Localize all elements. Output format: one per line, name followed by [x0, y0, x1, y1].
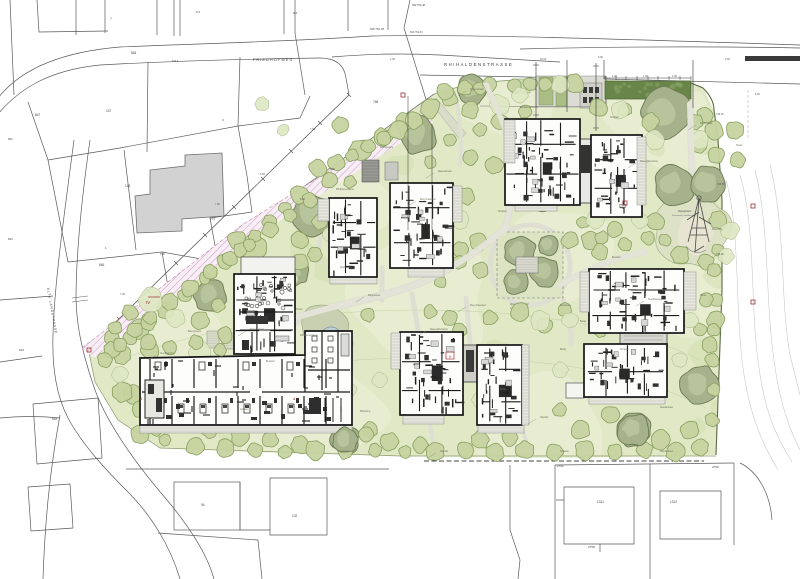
svg-text:1.00: 1.00	[612, 75, 617, 78]
svg-text:816.6: 816.6	[172, 60, 179, 63]
svg-text:IV: IV	[146, 300, 150, 305]
svg-text:2759: 2759	[712, 465, 719, 469]
svg-text:Pflanzung: Pflanzung	[712, 229, 723, 231]
svg-text:7: 7	[110, 17, 112, 21]
svg-text:Gehweg: Gehweg	[240, 409, 249, 411]
svg-text:Sitzplatz: Sitzplatz	[498, 210, 508, 213]
svg-text:Bestand: Bestand	[612, 256, 621, 259]
svg-text:Wiese: Wiese	[500, 389, 507, 391]
svg-text:Rasenansaat: Rasenansaat	[470, 88, 484, 91]
svg-text:FRIEDHOFWEG: FRIEDHOFWEG	[253, 58, 294, 62]
svg-text:902: 902	[8, 137, 13, 141]
svg-text:846: 846	[99, 263, 105, 267]
svg-text:5: 5	[449, 355, 451, 359]
svg-text:RHIHALDENSTRASSE: RHIHALDENSTRASSE	[444, 62, 513, 67]
svg-text:Vorplatz: Vorplatz	[440, 450, 449, 453]
svg-text:Terrasse: Terrasse	[620, 348, 630, 351]
svg-text:Bestand: Bestand	[266, 360, 275, 363]
svg-text:1.00: 1.00	[643, 75, 648, 78]
svg-text:Vorplatz: Vorplatz	[540, 416, 549, 419]
svg-text:846: 846	[131, 51, 137, 55]
svg-text:8.00: 8.00	[755, 93, 760, 96]
svg-text:143: 143	[125, 184, 131, 188]
svg-text:NW 752.03: NW 752.03	[410, 31, 423, 34]
svg-text:Baumgruppe: Baumgruppe	[380, 146, 394, 149]
svg-text:Neupflanzung: Neupflanzung	[160, 353, 175, 355]
svg-text:Gehweg: Gehweg	[340, 451, 349, 453]
svg-text:847: 847	[35, 113, 41, 117]
svg-text:Terrasse: Terrasse	[560, 450, 570, 453]
svg-text:Pflanzung: Pflanzung	[360, 411, 371, 413]
svg-text:745.50: 745.50	[717, 183, 725, 186]
svg-text:Rasenansaat: Rasenansaat	[250, 328, 264, 331]
svg-text:9.2: 9.2	[293, 11, 298, 15]
svg-text:640: 640	[19, 348, 24, 352]
svg-text:2758: 2758	[588, 545, 595, 549]
svg-text:745.00: 745.00	[716, 253, 724, 256]
svg-text:Hecke: Hecke	[736, 145, 743, 147]
svg-text:5.50: 5.50	[160, 253, 165, 256]
svg-text:Staudenbeet: Staudenbeet	[660, 450, 673, 453]
svg-text:Belag: Belag	[560, 349, 567, 351]
svg-text:768: 768	[373, 100, 379, 104]
svg-text:1311: 1311	[597, 500, 604, 504]
svg-text:5.50: 5.50	[260, 173, 265, 176]
svg-text:Staudenbeet: Staudenbeet	[660, 406, 673, 409]
svg-text:Wiese: Wiese	[700, 295, 707, 297]
svg-text:d: d	[293, 396, 295, 401]
svg-text:94: 94	[201, 503, 205, 507]
svg-text:Spielwiese: Spielwiese	[560, 305, 572, 307]
svg-text:1.00: 1.00	[672, 75, 677, 78]
svg-text:Baumgruppe: Baumgruppe	[188, 330, 202, 333]
svg-text:d: d	[140, 396, 142, 401]
svg-text:Weg chaussiert: Weg chaussiert	[470, 304, 486, 307]
svg-text:7.00: 7.00	[215, 203, 220, 206]
svg-text:NW 753.48: NW 753.48	[412, 3, 426, 7]
svg-text:Sitzplatz: Sitzplatz	[610, 116, 620, 119]
svg-text:1312: 1312	[670, 500, 677, 504]
svg-text:Belag: Belag	[580, 321, 587, 323]
svg-text:5.00: 5.00	[598, 56, 603, 59]
svg-text:Hecke: Hecke	[296, 309, 303, 311]
svg-text:7.00: 7.00	[420, 238, 425, 241]
svg-text:1.30: 1.30	[390, 58, 395, 61]
svg-text:Spielwiese: Spielwiese	[340, 267, 352, 269]
svg-text:132: 132	[292, 514, 298, 518]
svg-text:NW 752.03: NW 752.03	[370, 27, 384, 31]
svg-text:Neupflanzung: Neupflanzung	[648, 299, 663, 301]
svg-text:707: 707	[210, 217, 216, 221]
svg-text:3.00: 3.00	[300, 198, 305, 201]
svg-text:Magerwiese: Magerwiese	[368, 294, 381, 297]
svg-text:844: 844	[8, 237, 13, 241]
svg-text:Magerwiese: Magerwiese	[700, 122, 713, 125]
svg-text:Weg chaussiert: Weg chaussiert	[420, 198, 436, 201]
svg-text:4.50: 4.50	[725, 58, 730, 61]
svg-text:Spielplatz: Spielplatz	[678, 209, 692, 213]
svg-text:Rasenansaat: Rasenansaat	[438, 170, 452, 173]
svg-text:848: 848	[52, 417, 57, 421]
svg-text:7.00: 7.00	[310, 128, 315, 131]
svg-text:Wildblumenwiese: Wildblumenwiese	[520, 107, 539, 109]
svg-text:16.00: 16.00	[540, 58, 547, 61]
svg-text:5.50: 5.50	[330, 168, 335, 171]
svg-text:7.00: 7.00	[120, 293, 125, 296]
svg-text:2762: 2762	[557, 464, 564, 468]
svg-text:Wildblumenwiese: Wildblumenwiese	[300, 335, 319, 337]
svg-text:8.1: 8.1	[196, 10, 201, 14]
svg-text:746.00: 746.00	[716, 113, 724, 116]
svg-text:Wildblumenwiese: Wildblumenwiese	[336, 189, 355, 191]
svg-text:Rasengittersteine: Rasengittersteine	[640, 160, 659, 163]
svg-text:147: 147	[106, 109, 112, 113]
svg-text:Rasengittersteine: Rasengittersteine	[430, 328, 449, 331]
